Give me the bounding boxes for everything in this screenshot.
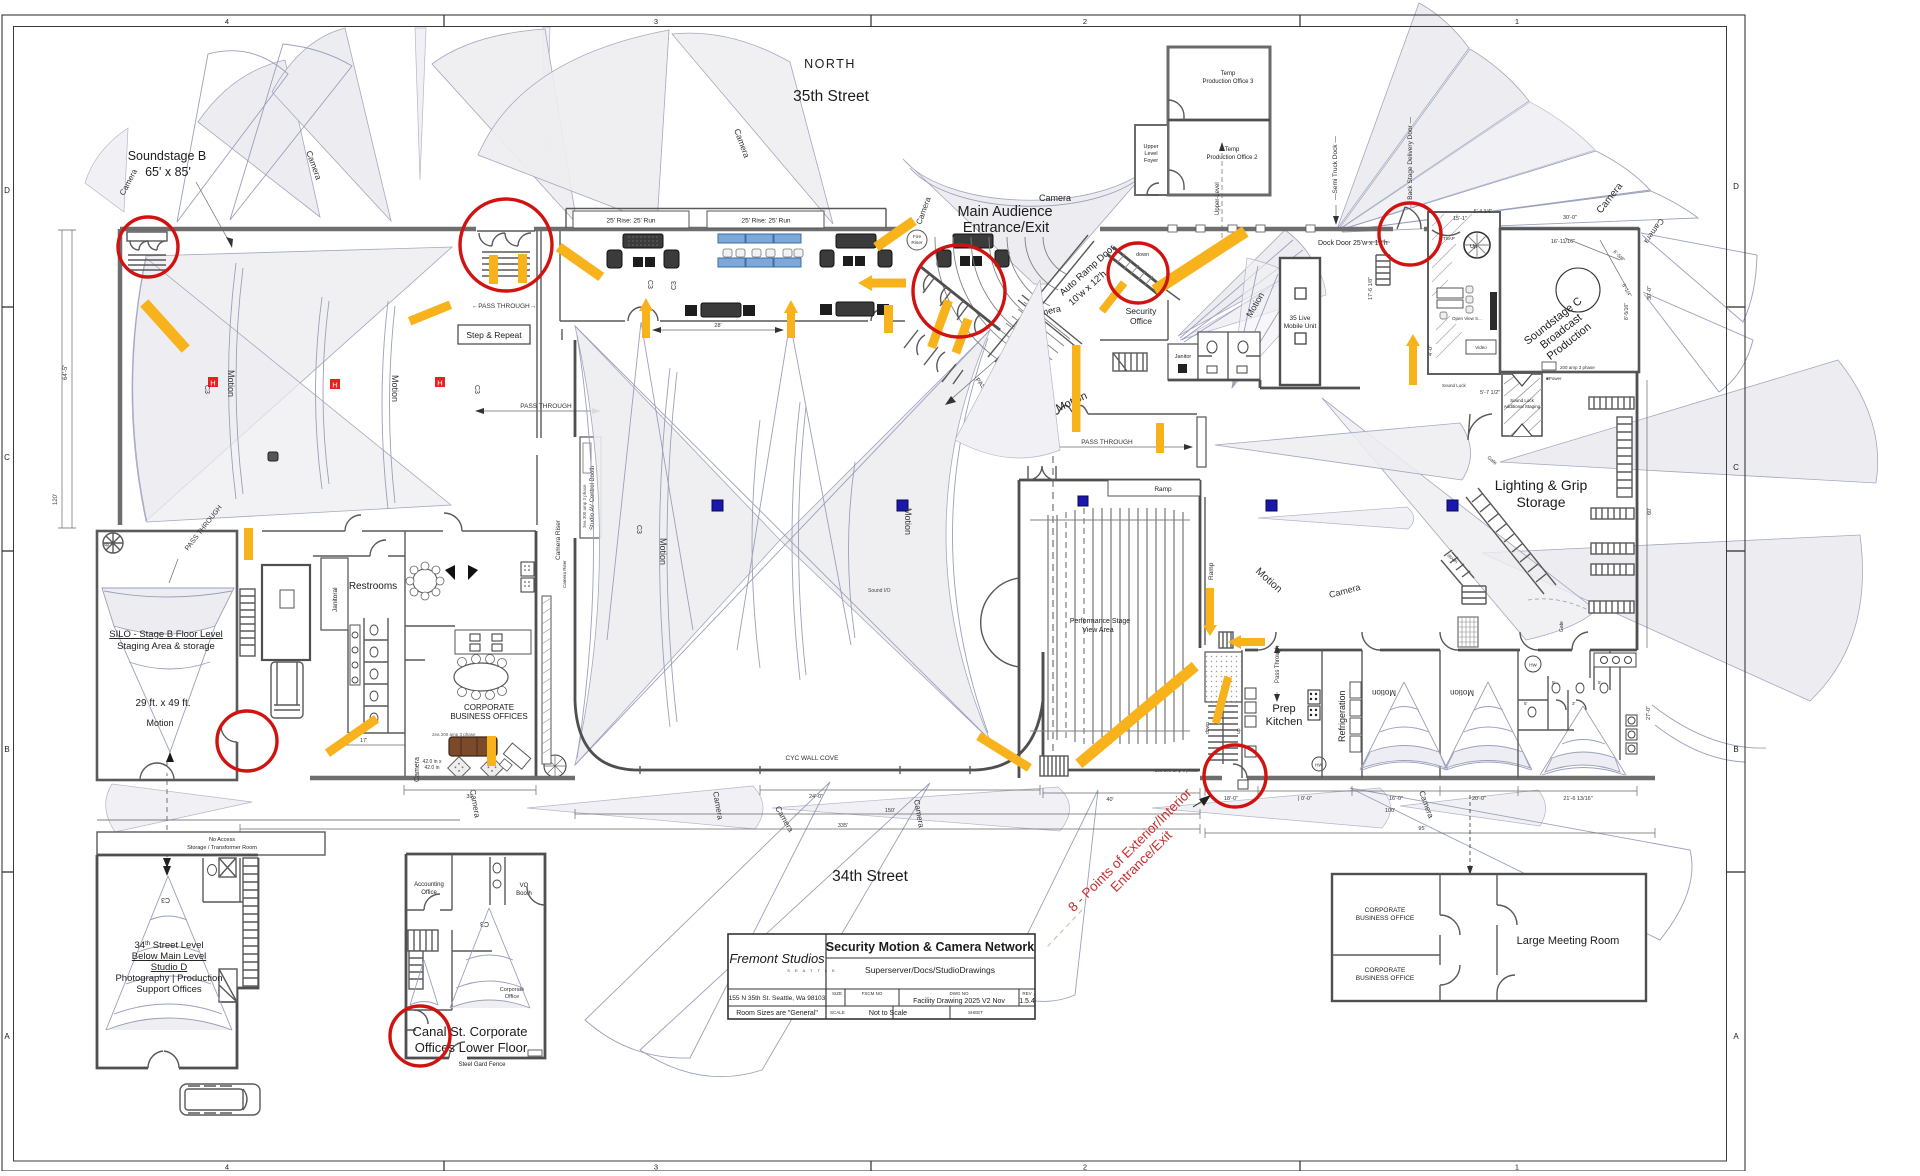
svg-text:Prep: Prep	[1272, 703, 1295, 715]
svg-text:34th Street: 34th Street	[832, 868, 909, 885]
svg-text:1.5.4: 1.5.4	[1019, 998, 1035, 1005]
svg-text:Fremont Studios: Fremont Studios	[729, 951, 825, 966]
svg-text:HW: HW	[1529, 663, 1537, 668]
svg-text:CORPORATE: CORPORATE	[1365, 907, 1406, 914]
svg-text:CYC WALL COVE: CYC WALL COVE	[786, 755, 840, 762]
svg-text:Foyer: Foyer	[1144, 158, 1158, 164]
svg-text:3': 3'	[1572, 701, 1576, 706]
svg-text:Not to Scale: Not to Scale	[869, 1010, 907, 1017]
svg-text:up: up	[104, 542, 110, 547]
svg-text:down: down	[1205, 722, 1211, 734]
svg-text:Restrooms: Restrooms	[349, 581, 397, 592]
svg-text:View Area: View Area	[1082, 627, 1113, 634]
svg-text:Up: Up	[1470, 244, 1477, 250]
svg-text:Canal St. Corporate: Canal St. Corporate	[413, 1024, 528, 1039]
svg-text:C: C	[1733, 463, 1739, 472]
svg-text:Mobile Unit: Mobile Unit	[1284, 323, 1317, 330]
svg-text:95': 95'	[1418, 826, 1425, 832]
svg-text:Room Sizes are "General": Room Sizes are "General"	[736, 1010, 818, 1017]
svg-text:4: 4	[225, 17, 229, 26]
svg-text:155 N 35th St. Seattle, Wa 981: 155 N 35th St. Seattle, Wa 98103	[729, 995, 826, 1002]
svg-text:28': 28'	[714, 323, 721, 329]
svg-text:Soundstage B: Soundstage B	[128, 149, 207, 163]
svg-text:Accounting: Accounting	[414, 882, 444, 888]
svg-text:Kitchen: Kitchen	[1266, 716, 1303, 728]
svg-text:5': 5'	[1552, 680, 1556, 685]
svg-text:Production Office 2: Production Office 2	[1207, 155, 1259, 161]
svg-text:8'-5/16": 8'-5/16"	[1624, 303, 1630, 320]
svg-text:C3: C3	[646, 280, 653, 289]
svg-text:16'-11/16": 16'-11/16"	[1551, 239, 1575, 245]
svg-text:TSAP: TSAP	[1443, 236, 1455, 241]
svg-text:2: 2	[1083, 17, 1087, 26]
svg-text:Studio D: Studio D	[151, 962, 188, 973]
svg-text:29 ft. x 49 ft.: 29 ft. x 49 ft.	[135, 698, 190, 709]
svg-text:25' Rise: 25' Run: 25' Rise: 25' Run	[606, 218, 655, 225]
svg-text:Office: Office	[1130, 316, 1152, 326]
svg-text:60': 60'	[1647, 508, 1653, 515]
svg-text:Security Motion & Camera Netwo: Security Motion & Camera Network	[826, 940, 1034, 954]
svg-text:150': 150'	[885, 808, 895, 814]
svg-text:40': 40'	[1106, 797, 1113, 803]
svg-text:—Semi Truck Dock —: —Semi Truck Dock —	[1332, 136, 1339, 200]
svg-text:BUSINESS OFFICE: BUSINESS OFFICE	[1356, 915, 1415, 922]
svg-text:down: down	[1136, 252, 1149, 258]
svg-text:C3: C3	[203, 385, 210, 394]
svg-text:B: B	[1733, 745, 1738, 754]
svg-text:C: C	[4, 453, 10, 462]
svg-text:Lighting & Grip: Lighting & Grip	[1495, 477, 1588, 493]
svg-text:PASS THROUGH: PASS THROUGH	[1081, 439, 1133, 446]
svg-text:120': 120'	[53, 494, 59, 505]
svg-text:Camera Riser: Camera Riser	[555, 519, 562, 560]
svg-text:Upper-Level: Upper-Level	[1215, 182, 1221, 215]
svg-text:20'-0": 20'-0"	[1472, 796, 1486, 802]
svg-text:100': 100'	[1385, 808, 1395, 814]
svg-text:SHEET: SHEET	[968, 1010, 983, 1015]
svg-text:REV: REV	[1022, 991, 1031, 996]
svg-text:17': 17'	[360, 738, 367, 744]
svg-text:PASS THROUGH: PASS THROUGH	[520, 403, 572, 410]
svg-text:Open View S...: Open View S...	[1452, 316, 1482, 321]
svg-text:5': 5'	[1524, 701, 1528, 706]
svg-text:CORPORATE: CORPORATE	[1365, 967, 1406, 974]
svg-text:Sound Lock: Sound Lock	[1442, 383, 1467, 388]
svg-text:H: H	[332, 381, 337, 390]
svg-text:Motion: Motion	[390, 375, 400, 402]
svg-text:3ea 300 amp 3 phase: 3ea 300 amp 3 phase	[582, 484, 587, 528]
svg-text:5'-7 1/2": 5'-7 1/2"	[1480, 390, 1500, 396]
svg-text:Main Audience: Main Audience	[957, 204, 1052, 220]
svg-text:Staging Area & storage: Staging Area & storage	[117, 641, 215, 652]
svg-text:Storage / Transformer Room: Storage / Transformer Room	[187, 845, 257, 851]
svg-text:2ea 200 amp 3 phase: 2ea 200 amp 3 phase	[1155, 768, 1199, 773]
svg-text:18'-0": 18'-0"	[1224, 796, 1238, 802]
svg-text:H: H	[210, 379, 215, 388]
svg-text:35 Live: 35 Live	[1290, 315, 1311, 322]
svg-text:27'-0": 27'-0"	[1646, 706, 1652, 720]
svg-text:Production Office 3: Production Office 3	[1203, 79, 1255, 85]
svg-text:3: 3	[654, 1163, 658, 1172]
svg-text:Fire: Fire	[913, 234, 922, 240]
svg-text:Motion: Motion	[1372, 688, 1396, 697]
svg-text:4: 4	[225, 1163, 229, 1172]
svg-text:Storage: Storage	[1516, 494, 1565, 510]
svg-text:C3: C3	[671, 281, 678, 290]
svg-text:Below Main Level: Below Main Level	[132, 951, 206, 962]
svg-text:Superserver/Docs/StudioDrawing: Superserver/Docs/StudioDrawings	[865, 965, 995, 975]
svg-text:up: up	[1236, 728, 1242, 734]
svg-text:42.0 in: 42.0 in	[424, 765, 439, 771]
svg-text:SILO - Stage B Floor Level: SILO - Stage B Floor Level	[109, 629, 223, 640]
svg-text:335': 335'	[838, 823, 848, 829]
svg-text:Camera: Camera	[1039, 193, 1071, 203]
svg-text:Support Offices: Support Offices	[136, 984, 202, 995]
svg-text:Ramp: Ramp	[1208, 562, 1215, 580]
svg-text:Performance Stage: Performance Stage	[1070, 618, 1130, 625]
svg-text:C3: C3	[480, 920, 489, 927]
svg-text:5': 5'	[1598, 680, 1602, 685]
svg-text:Camera: Camera	[414, 757, 421, 782]
svg-text:No Access: No Access	[209, 837, 235, 843]
svg-text:Photography | Production: Photography | Production	[115, 973, 222, 984]
svg-text:Motion: Motion	[226, 370, 236, 397]
svg-text:D: D	[1733, 182, 1739, 191]
svg-text:Riser: Riser	[911, 240, 923, 246]
svg-text:D: D	[4, 186, 10, 195]
svg-text:30'-0": 30'-0"	[1647, 286, 1653, 300]
svg-text:Entrance/Exit: Entrance/Exit	[963, 220, 1049, 236]
svg-text:A: A	[1733, 1032, 1739, 1041]
svg-text:H: H	[437, 379, 442, 388]
svg-text:■Power: ■Power	[1546, 376, 1562, 381]
svg-text:5'-4 3/4": 5'-4 3/4"	[1474, 209, 1493, 215]
svg-text:Sound I/O: Sound I/O	[868, 588, 891, 594]
svg-text:Motion: Motion	[658, 538, 668, 565]
svg-text:B: B	[4, 745, 9, 754]
svg-text:35th Street: 35th Street	[793, 88, 870, 105]
svg-text:Camera Riser: Camera Riser	[562, 560, 567, 588]
svg-text:34th Street Level: 34th Street Level	[135, 940, 204, 951]
svg-text:Ramp: Ramp	[1154, 486, 1172, 493]
svg-text:200 amp 3 phase: 200 amp 3 phase	[1560, 365, 1595, 370]
svg-text:64'-5": 64'-5"	[63, 365, 69, 380]
svg-text:3: 3	[654, 17, 658, 26]
svg-text:Janitor: Janitor	[1175, 354, 1192, 360]
svg-text:FSCM NO: FSCM NO	[862, 991, 883, 996]
svg-text:C3: C3	[473, 385, 480, 394]
svg-text:4'-0": 4'-0"	[1428, 345, 1434, 356]
svg-text:Upper: Upper	[1144, 144, 1159, 150]
svg-text:BUSINESS OFFICE: BUSINESS OFFICE	[1356, 975, 1415, 982]
svg-text:Dock Door 25'w x 18'h: Dock Door 25'w x 18'h	[1318, 240, 1388, 247]
svg-text:| 0'-0": | 0'-0"	[1298, 796, 1312, 802]
svg-text:SIZE: SIZE	[832, 991, 842, 996]
svg-text:Large Meeting Room: Large Meeting Room	[1517, 935, 1620, 947]
svg-text:Level: Level	[1144, 151, 1157, 157]
svg-text:Motion: Motion	[1450, 688, 1474, 697]
svg-text:←PASS THROUGH→: ←PASS THROUGH→	[472, 303, 536, 310]
svg-text:A: A	[4, 1032, 10, 1041]
svg-text:Additional Staging: Additional Staging	[1504, 404, 1541, 409]
svg-text:17'-6 1/8": 17'-6 1/8"	[1368, 277, 1374, 300]
svg-text:15'-1": 15'-1"	[1453, 216, 1467, 222]
svg-text:30'-0": 30'-0"	[1563, 215, 1577, 221]
svg-text:Video: Video	[1475, 345, 1487, 350]
svg-text:NORTH: NORTH	[804, 57, 856, 71]
svg-text:24'-0": 24'-0"	[809, 794, 823, 800]
svg-text:Corporate: Corporate	[500, 987, 524, 993]
svg-text:Temp: Temp	[1221, 71, 1236, 77]
svg-text:C3: C3	[161, 896, 170, 903]
svg-text:Motion: Motion	[146, 718, 173, 728]
svg-text:Refrigeration: Refrigeration	[1337, 690, 1347, 742]
svg-text:Office: Office	[505, 994, 519, 1000]
svg-text:2: 2	[1083, 1163, 1087, 1172]
svg-text:65' x 85': 65' x 85'	[145, 165, 191, 179]
svg-text:CORPORATE: CORPORATE	[464, 703, 514, 712]
svg-text:BUSINESS OFFICES: BUSINESS OFFICES	[450, 712, 527, 721]
svg-text:Temp: Temp	[1225, 147, 1240, 153]
svg-text:SCALE: SCALE	[830, 1010, 845, 1015]
svg-text:Step & Repeat: Step & Repeat	[466, 330, 522, 340]
svg-text:30': 30'	[466, 794, 473, 800]
svg-text:Motion: Motion	[903, 508, 913, 535]
svg-text:DWG NO: DWG NO	[950, 991, 969, 996]
svg-text:Offices Lower Floor: Offices Lower Floor	[415, 1040, 528, 1055]
svg-text:16'-0": 16'-0"	[1389, 796, 1403, 802]
svg-text:Janitoral: Janitoral	[332, 587, 339, 612]
svg-text:25' Rise: 25' Run: 25' Rise: 25' Run	[741, 218, 790, 225]
svg-text:1: 1	[1515, 17, 1519, 26]
svg-text:2ea 200 amp 3 phase: 2ea 200 amp 3 phase	[432, 732, 476, 737]
svg-text:C3: C3	[635, 525, 642, 534]
svg-text:S E A T T L E: S E A T T L E	[787, 968, 837, 973]
svg-text:Security: Security	[1126, 306, 1157, 316]
svg-text:Steel Gard Fence: Steel Gard Fence	[458, 1062, 506, 1068]
svg-text:1: 1	[1515, 1163, 1519, 1172]
svg-text:Sound Lock: Sound Lock	[1510, 398, 1535, 403]
svg-text:← Back Stage Delivery Door —: ← Back Stage Delivery Door —	[1407, 116, 1414, 208]
svg-text:21'-6 13/16": 21'-6 13/16"	[1563, 796, 1592, 802]
svg-text:Facility Drawing 2025 V2 Nov: Facility Drawing 2025 V2 Nov	[913, 998, 1005, 1005]
svg-text:Gate: Gate	[1559, 621, 1565, 632]
